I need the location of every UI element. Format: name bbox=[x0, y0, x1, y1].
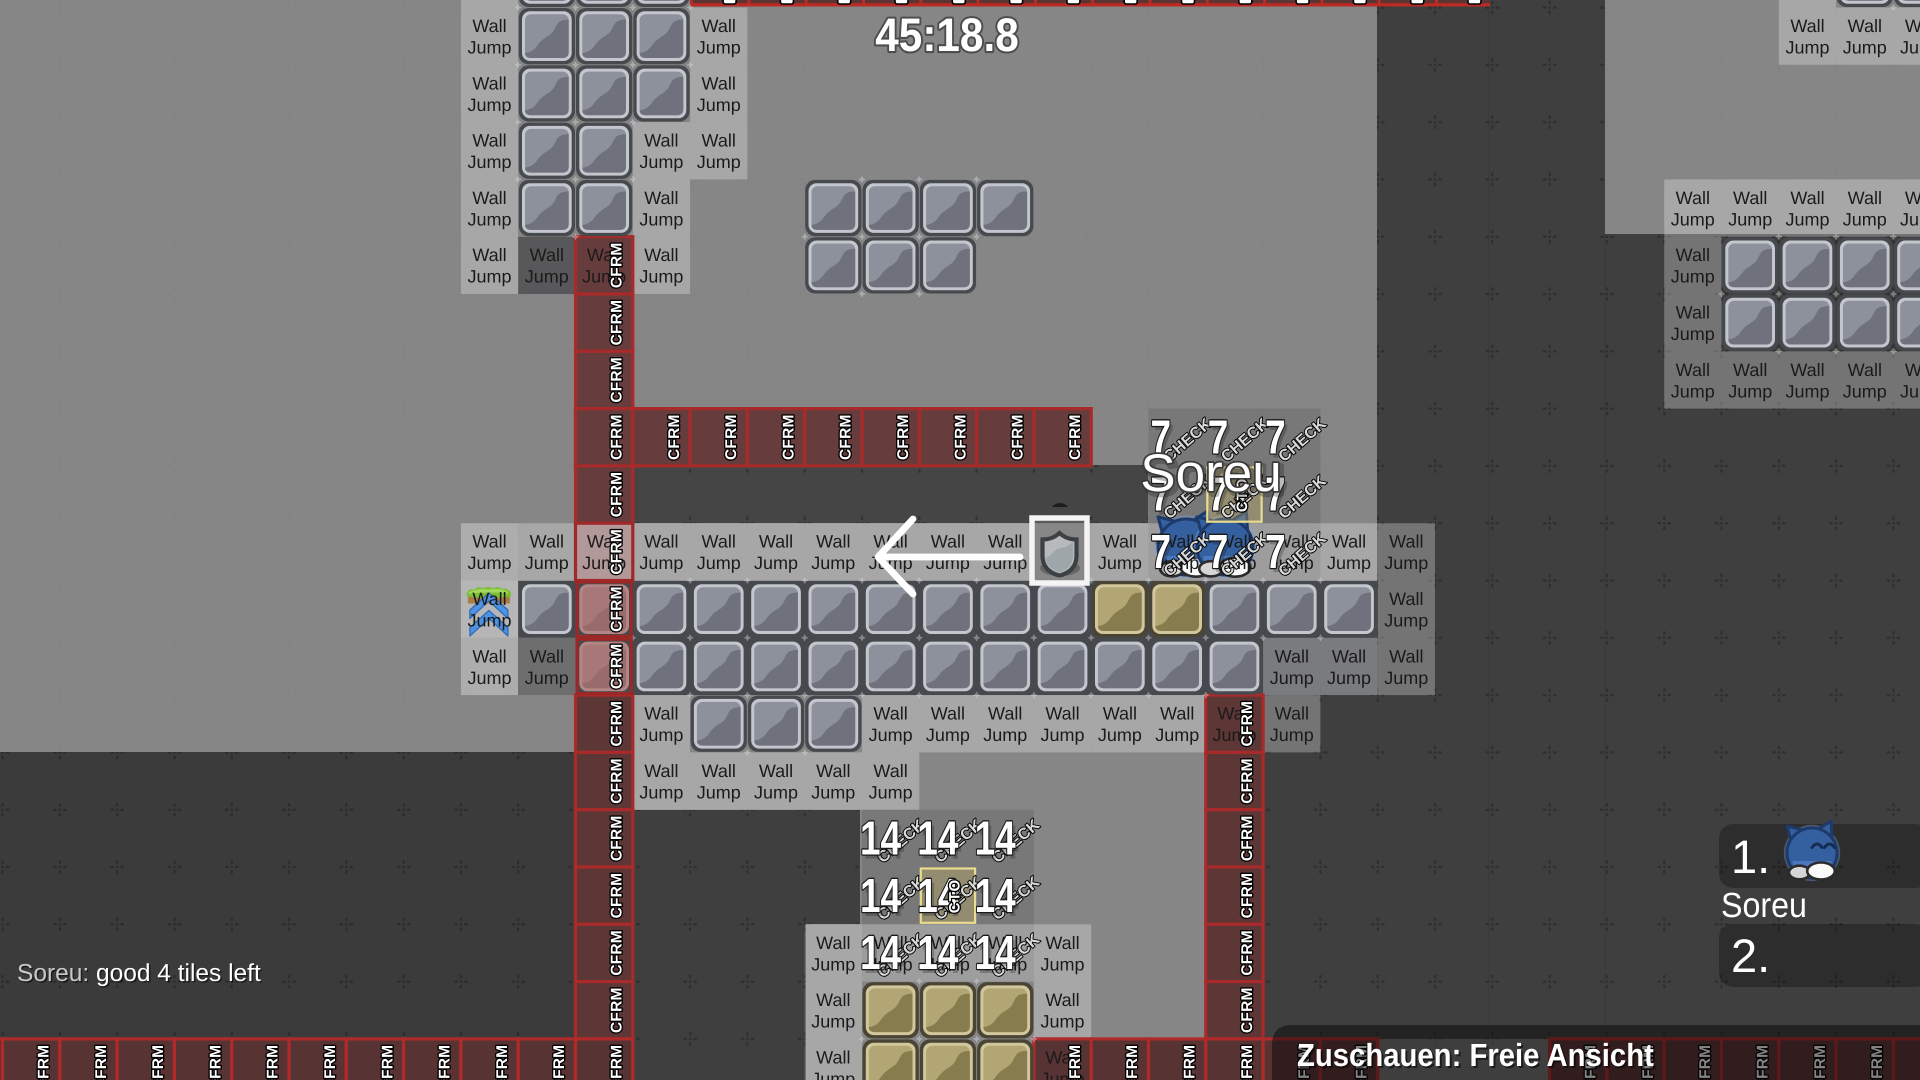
svg-text:Wall: Wall bbox=[1790, 16, 1824, 36]
svg-text:Jump: Jump bbox=[1785, 381, 1829, 401]
svg-text:Wall: Wall bbox=[472, 646, 506, 666]
svg-text:Wall: Wall bbox=[472, 73, 506, 93]
svg-text:Soreu: Soreu bbox=[1140, 444, 1281, 503]
svg-text:Jump: Jump bbox=[1785, 209, 1829, 229]
svg-text:7: 7 bbox=[1265, 526, 1286, 579]
svg-text:Wall: Wall bbox=[1676, 360, 1710, 380]
svg-text:CFRM: CFRM bbox=[609, 529, 626, 575]
svg-text:CFRM: CFRM bbox=[1239, 1045, 1256, 1080]
svg-text:CFRM: CFRM bbox=[609, 357, 626, 403]
svg-text:Wall: Wall bbox=[1905, 360, 1920, 380]
svg-text:Wall: Wall bbox=[1676, 188, 1710, 208]
svg-text:Wall: Wall bbox=[1332, 646, 1366, 666]
svg-text:Soreu: Soreu bbox=[1721, 886, 1807, 925]
svg-text:CFRM: CFRM bbox=[1067, 1045, 1084, 1080]
svg-text:CFRM: CFRM bbox=[723, 414, 740, 460]
svg-text:Jump: Jump bbox=[639, 553, 683, 573]
svg-text:14: 14 bbox=[975, 813, 1016, 866]
svg-text:Wall: Wall bbox=[530, 646, 564, 666]
svg-text:CFRM: CFRM bbox=[1239, 816, 1256, 862]
svg-text:Jump: Jump bbox=[1098, 553, 1142, 573]
svg-text:Jump: Jump bbox=[1155, 725, 1199, 745]
svg-text:Jump: Jump bbox=[1040, 725, 1084, 745]
svg-text:Jump: Jump bbox=[639, 209, 683, 229]
svg-text:CFRM: CFRM bbox=[494, 1045, 511, 1080]
svg-text:CFRM: CFRM bbox=[609, 816, 626, 862]
svg-text:Jump: Jump bbox=[754, 782, 798, 802]
svg-text:Soreu: good 4 tiles left: Soreu: good 4 tiles left bbox=[17, 960, 261, 987]
svg-text:CFRM: CFRM bbox=[609, 414, 626, 460]
svg-text:CFRM: CFRM bbox=[666, 414, 683, 460]
svg-text:Jump: Jump bbox=[697, 553, 741, 573]
svg-text:Wall: Wall bbox=[472, 245, 506, 265]
svg-text:CFRM: CFRM bbox=[609, 243, 626, 289]
svg-text:CFRM: CFRM bbox=[609, 987, 626, 1033]
svg-text:Wall: Wall bbox=[1848, 360, 1882, 380]
svg-text:Wall: Wall bbox=[1905, 16, 1920, 36]
svg-text:Wall: Wall bbox=[931, 532, 965, 552]
svg-text:Wall: Wall bbox=[1676, 245, 1710, 265]
svg-text:Wall: Wall bbox=[1733, 360, 1767, 380]
svg-text:Wall: Wall bbox=[472, 16, 506, 36]
svg-text:Wall: Wall bbox=[873, 704, 907, 724]
svg-text:CFRM: CFRM bbox=[1239, 930, 1256, 976]
svg-text:CFRM: CFRM bbox=[609, 701, 626, 747]
svg-text:CFRM: CFRM bbox=[265, 1045, 282, 1080]
svg-text:Jump: Jump bbox=[1671, 381, 1715, 401]
svg-text:Wall: Wall bbox=[816, 532, 850, 552]
svg-text:Jump: Jump bbox=[869, 725, 913, 745]
svg-text:14: 14 bbox=[860, 813, 901, 866]
svg-text:Wall: Wall bbox=[1045, 990, 1079, 1010]
svg-text:Wall: Wall bbox=[873, 761, 907, 781]
svg-text:Jump: Jump bbox=[1843, 381, 1887, 401]
svg-text:Wall: Wall bbox=[644, 761, 678, 781]
svg-text:CFRM: CFRM bbox=[150, 1045, 167, 1080]
svg-text:Wall: Wall bbox=[816, 761, 850, 781]
svg-text:Wall: Wall bbox=[1160, 704, 1194, 724]
svg-text:Wall: Wall bbox=[644, 131, 678, 151]
svg-text:Wall: Wall bbox=[644, 245, 678, 265]
svg-text:Jump: Jump bbox=[1900, 38, 1920, 58]
svg-text:Wall: Wall bbox=[1676, 303, 1710, 323]
svg-text:CFRM: CFRM bbox=[780, 414, 797, 460]
svg-text:Wall: Wall bbox=[702, 73, 736, 93]
svg-text:CFRM: CFRM bbox=[609, 644, 626, 690]
svg-text:CFRM: CFRM bbox=[1239, 873, 1256, 919]
svg-text:Jump: Jump bbox=[467, 267, 511, 287]
svg-text:Wall: Wall bbox=[988, 532, 1022, 552]
svg-text:Jump: Jump bbox=[1270, 668, 1314, 688]
svg-text:CFRM: CFRM bbox=[1067, 414, 1084, 460]
svg-text:Jump: Jump bbox=[1384, 611, 1428, 631]
svg-text:Wall: Wall bbox=[1389, 646, 1423, 666]
svg-text:Wall: Wall bbox=[816, 1047, 850, 1067]
svg-text:CFRM: CFRM bbox=[1239, 987, 1256, 1033]
svg-text:Jump: Jump bbox=[525, 267, 569, 287]
svg-text:Jump: Jump bbox=[1785, 38, 1829, 58]
svg-text:14: 14 bbox=[917, 927, 958, 980]
svg-text:Jump: Jump bbox=[697, 782, 741, 802]
svg-text:CFRM: CFRM bbox=[609, 472, 626, 518]
svg-text:Jump: Jump bbox=[525, 553, 569, 573]
svg-text:CFRM: CFRM bbox=[895, 414, 912, 460]
svg-text:Jump: Jump bbox=[1900, 209, 1920, 229]
svg-text:Wall: Wall bbox=[472, 131, 506, 151]
svg-text:Zuschauen: Freie Ansicht: Zuschauen: Freie Ansicht bbox=[1297, 1037, 1654, 1073]
svg-text:CFRM: CFRM bbox=[609, 873, 626, 919]
svg-text:Jump: Jump bbox=[697, 152, 741, 172]
svg-text:Wall: Wall bbox=[1733, 188, 1767, 208]
svg-text:14: 14 bbox=[975, 870, 1016, 923]
svg-text:Jump: Jump bbox=[639, 267, 683, 287]
svg-text:Wall: Wall bbox=[472, 589, 506, 609]
svg-text:Jump: Jump bbox=[869, 782, 913, 802]
svg-text:Jump: Jump bbox=[697, 38, 741, 58]
svg-text:Jump: Jump bbox=[754, 553, 798, 573]
svg-text:Wall: Wall bbox=[759, 532, 793, 552]
svg-text:Jump: Jump bbox=[467, 209, 511, 229]
svg-text:Wall: Wall bbox=[530, 245, 564, 265]
svg-text:CFRM: CFRM bbox=[379, 1045, 396, 1080]
svg-text:Jump: Jump bbox=[467, 38, 511, 58]
svg-text:14: 14 bbox=[860, 870, 901, 923]
svg-text:Wall: Wall bbox=[1790, 360, 1824, 380]
svg-text:CFRM: CFRM bbox=[322, 1045, 339, 1080]
svg-text:Wall: Wall bbox=[644, 704, 678, 724]
svg-text:14: 14 bbox=[975, 927, 1016, 980]
svg-text:CFRM: CFRM bbox=[1124, 1045, 1141, 1080]
svg-text:CFRM: CFRM bbox=[1239, 701, 1256, 747]
svg-text:Wall: Wall bbox=[702, 532, 736, 552]
svg-text:Wall: Wall bbox=[472, 532, 506, 552]
svg-text:Jump: Jump bbox=[639, 782, 683, 802]
svg-text:Jump: Jump bbox=[1040, 1012, 1084, 1032]
svg-text:Wall: Wall bbox=[472, 188, 506, 208]
svg-text:7: 7 bbox=[1151, 526, 1172, 579]
svg-text:CFRM: CFRM bbox=[609, 930, 626, 976]
svg-text:Jump: Jump bbox=[467, 152, 511, 172]
svg-text:Wall: Wall bbox=[1332, 532, 1366, 552]
svg-text:Wall: Wall bbox=[816, 990, 850, 1010]
svg-text:Jump: Jump bbox=[1843, 38, 1887, 58]
svg-text:Jump: Jump bbox=[1040, 954, 1084, 974]
svg-text:Wall: Wall bbox=[530, 532, 564, 552]
svg-text:Jump: Jump bbox=[1098, 725, 1142, 745]
svg-text:CFRM: CFRM bbox=[838, 414, 855, 460]
svg-text:Wall: Wall bbox=[1848, 188, 1882, 208]
svg-text:Wall: Wall bbox=[644, 532, 678, 552]
svg-text:14: 14 bbox=[917, 813, 958, 866]
svg-text:Wall: Wall bbox=[702, 131, 736, 151]
svg-text:CFRM: CFRM bbox=[609, 758, 626, 804]
svg-text:Jump: Jump bbox=[1384, 668, 1428, 688]
svg-text:CFRM: CFRM bbox=[1239, 758, 1256, 804]
svg-text:Wall: Wall bbox=[816, 933, 850, 953]
svg-text:Jump: Jump bbox=[811, 782, 855, 802]
svg-text:Jump: Jump bbox=[697, 95, 741, 115]
svg-text:2.: 2. bbox=[1731, 929, 1770, 982]
svg-text:Jump: Jump bbox=[467, 668, 511, 688]
svg-text:Jump: Jump bbox=[1327, 553, 1371, 573]
svg-text:Jump: Jump bbox=[1327, 668, 1371, 688]
svg-text:CFRM: CFRM bbox=[437, 1045, 454, 1080]
svg-text:Wall: Wall bbox=[1275, 646, 1309, 666]
svg-text:CFRM: CFRM bbox=[609, 1045, 626, 1080]
svg-text:Jump: Jump bbox=[467, 611, 511, 631]
svg-text:Jump: Jump bbox=[639, 152, 683, 172]
svg-text:Wall: Wall bbox=[988, 704, 1022, 724]
svg-text:Jump: Jump bbox=[1728, 381, 1772, 401]
svg-text:CFRM: CFRM bbox=[36, 1045, 53, 1080]
svg-text:Wall: Wall bbox=[931, 704, 965, 724]
svg-text:Jump: Jump bbox=[1671, 267, 1715, 287]
svg-text:Wall: Wall bbox=[1790, 188, 1824, 208]
svg-text:Wall: Wall bbox=[1045, 933, 1079, 953]
svg-text:CFRM: CFRM bbox=[609, 300, 626, 346]
svg-text:Wall: Wall bbox=[702, 16, 736, 36]
svg-text:Jump: Jump bbox=[1900, 381, 1920, 401]
svg-text:Jump: Jump bbox=[525, 668, 569, 688]
svg-text:Jump: Jump bbox=[467, 95, 511, 115]
svg-text:CFRM: CFRM bbox=[952, 414, 969, 460]
svg-text:CFRM: CFRM bbox=[609, 586, 626, 632]
svg-text:CFRM: CFRM bbox=[1010, 414, 1027, 460]
svg-text:14: 14 bbox=[860, 927, 901, 980]
svg-text:CTO: CTO bbox=[946, 879, 963, 913]
svg-text:1.: 1. bbox=[1731, 830, 1770, 883]
svg-text:Wall: Wall bbox=[702, 761, 736, 781]
svg-text:Wall: Wall bbox=[759, 761, 793, 781]
svg-text:Jump: Jump bbox=[1270, 725, 1314, 745]
svg-text:Wall: Wall bbox=[1389, 532, 1423, 552]
svg-text:Wall: Wall bbox=[1848, 16, 1882, 36]
svg-text:Wall: Wall bbox=[1389, 589, 1423, 609]
svg-text:Jump: Jump bbox=[811, 954, 855, 974]
svg-text:45:18.8: 45:18.8 bbox=[875, 8, 1018, 61]
svg-text:Jump: Jump bbox=[811, 553, 855, 573]
svg-text:Jump: Jump bbox=[1728, 209, 1772, 229]
svg-text:Jump: Jump bbox=[1671, 209, 1715, 229]
svg-text:CFRM: CFRM bbox=[551, 1045, 568, 1080]
svg-text:Wall: Wall bbox=[1103, 532, 1137, 552]
svg-text:Wall: Wall bbox=[1103, 704, 1137, 724]
svg-text:CFRM: CFRM bbox=[93, 1045, 110, 1080]
svg-text:Jump: Jump bbox=[926, 725, 970, 745]
svg-text:Jump: Jump bbox=[467, 553, 511, 573]
svg-text:Jump: Jump bbox=[811, 1069, 855, 1080]
svg-text:Wall: Wall bbox=[1045, 704, 1079, 724]
svg-text:CFRM: CFRM bbox=[207, 1045, 224, 1080]
svg-text:Wall: Wall bbox=[1905, 188, 1920, 208]
svg-text:Jump: Jump bbox=[639, 725, 683, 745]
svg-text:Jump: Jump bbox=[1843, 209, 1887, 229]
svg-text:Wall: Wall bbox=[644, 188, 678, 208]
svg-text:Jump: Jump bbox=[1671, 324, 1715, 344]
svg-text:Jump: Jump bbox=[983, 725, 1027, 745]
svg-text:7: 7 bbox=[1208, 526, 1229, 579]
svg-text:Wall: Wall bbox=[1275, 704, 1309, 724]
svg-text:CFRM: CFRM bbox=[1182, 1045, 1199, 1080]
svg-text:Jump: Jump bbox=[811, 1012, 855, 1032]
svg-text:Jump: Jump bbox=[1384, 553, 1428, 573]
